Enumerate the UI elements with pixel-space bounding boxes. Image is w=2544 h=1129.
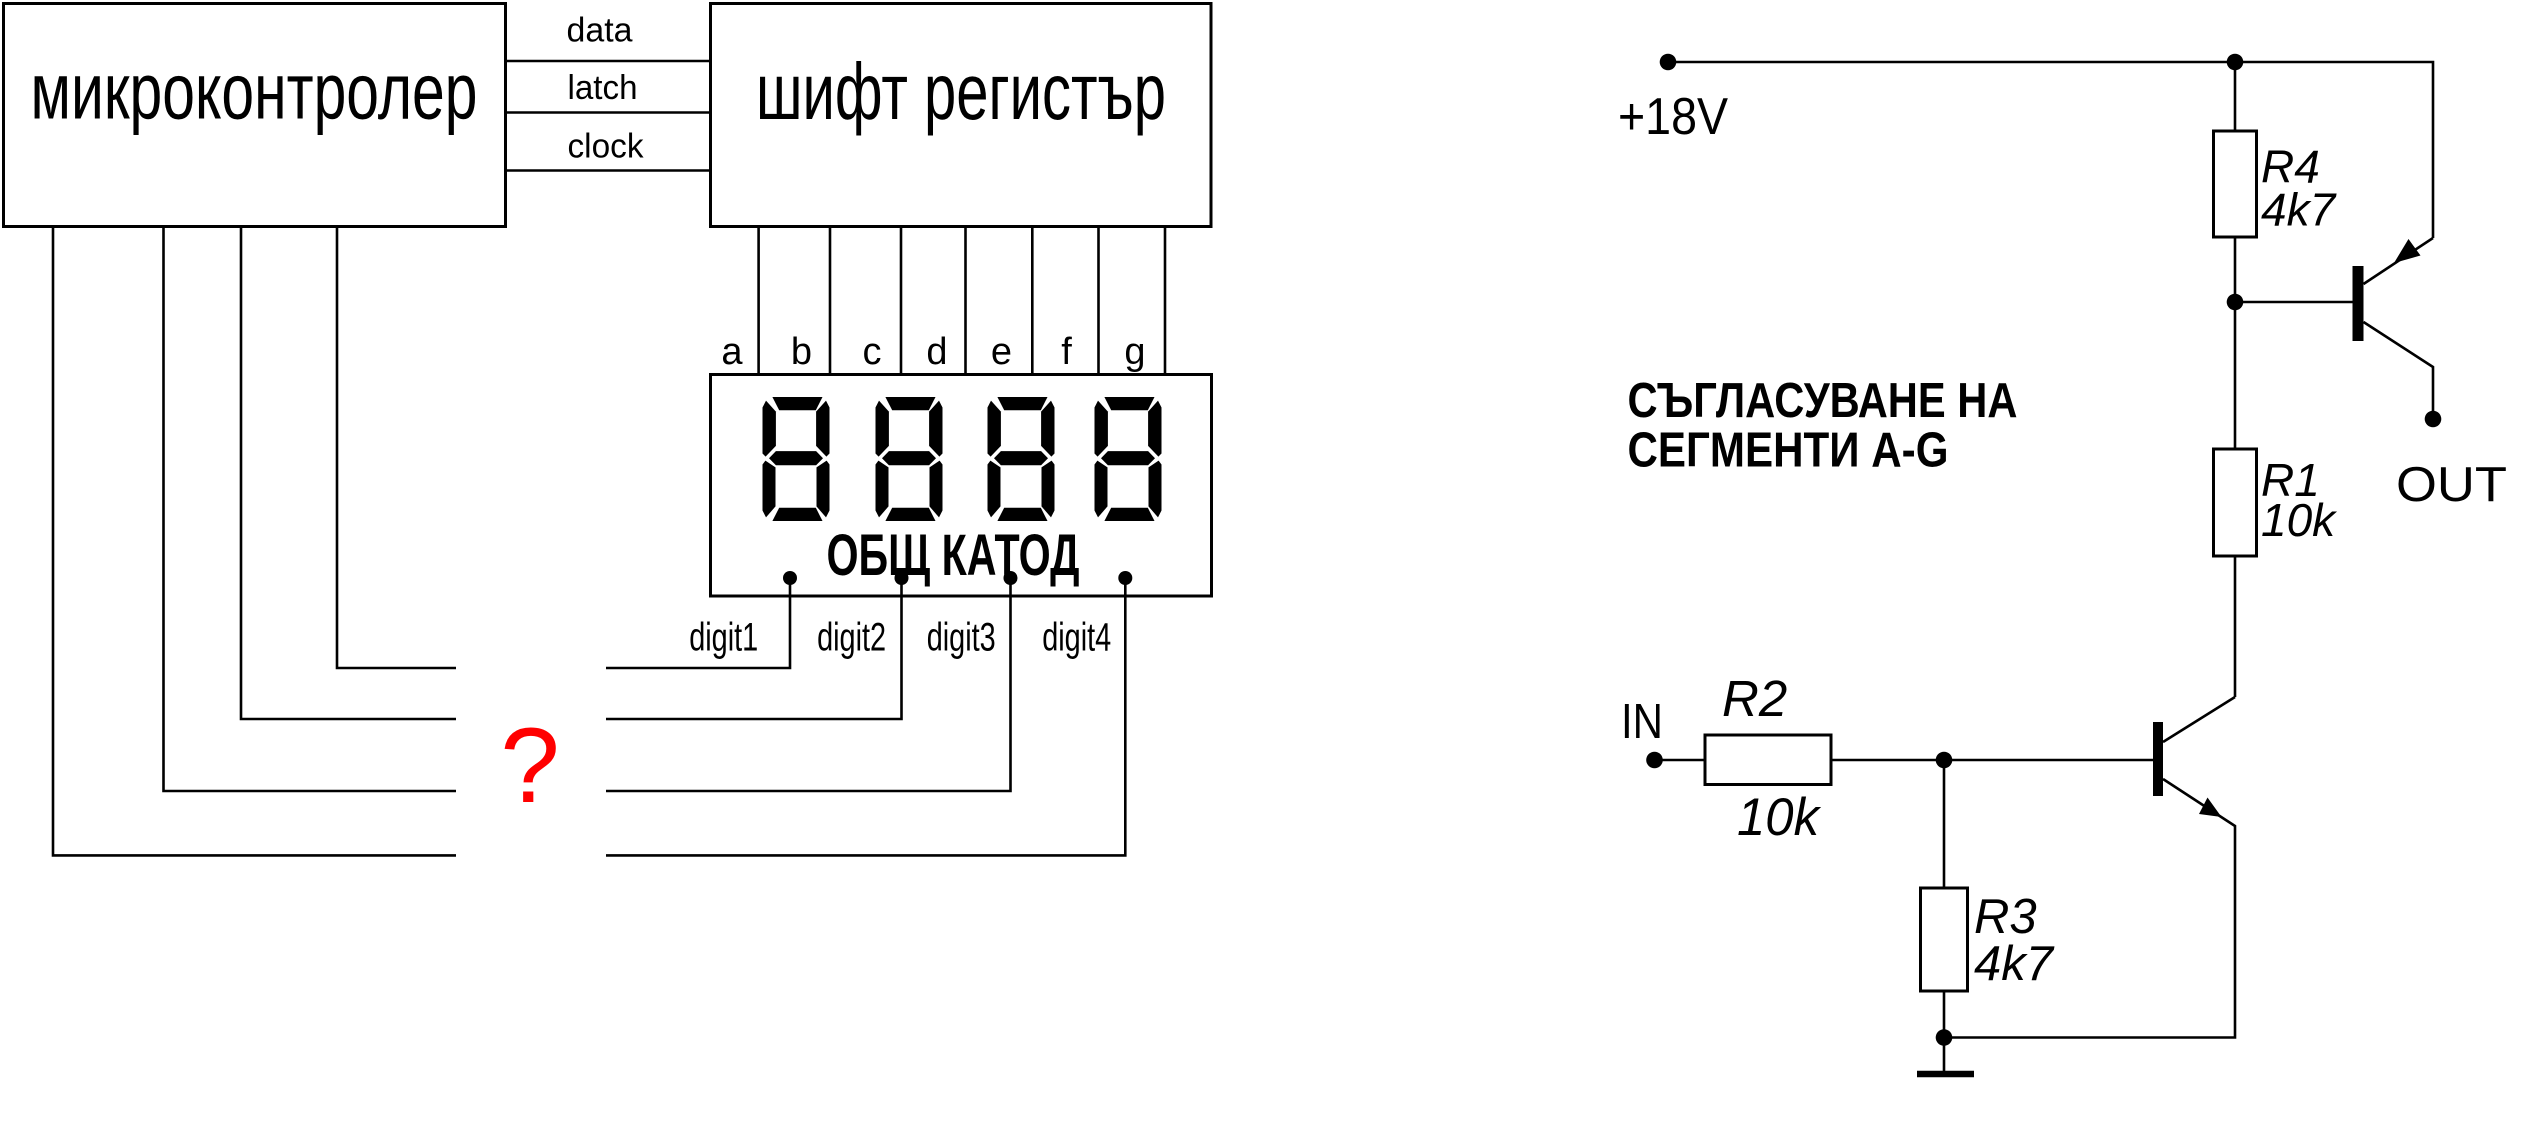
svg-text:4k7: 4k7 <box>2261 184 2337 236</box>
svg-text:digit2: digit2 <box>817 616 886 660</box>
svg-text:IN: IN <box>1621 695 1663 749</box>
svg-text:R2: R2 <box>1722 670 1787 727</box>
svg-text:latch: latch <box>568 69 638 107</box>
svg-text:f: f <box>1061 331 1072 373</box>
svg-text:g: g <box>1124 331 1145 373</box>
svg-text:digit1: digit1 <box>689 616 758 660</box>
svg-text:digit3: digit3 <box>927 616 996 660</box>
svg-text:ОБЩ КАТОД: ОБЩ КАТОД <box>827 523 1080 588</box>
svg-text:10k: 10k <box>1737 788 1821 847</box>
svg-text:?: ? <box>500 705 560 825</box>
svg-text:СЕГМЕНТИ A-G: СЕГМЕНТИ A-G <box>1628 423 1949 477</box>
svg-text:микроконтролер: микроконтролер <box>31 47 478 136</box>
svg-text:+18V: +18V <box>1618 88 1728 146</box>
svg-text:a: a <box>721 331 743 373</box>
svg-text:c: c <box>863 331 882 373</box>
svg-text:b: b <box>791 331 812 373</box>
svg-text:data: data <box>567 12 633 50</box>
svg-text:clock: clock <box>568 128 645 166</box>
svg-text:d: d <box>926 331 947 373</box>
svg-text:R3: R3 <box>1974 890 2037 944</box>
svg-text:СЪГЛАСУВАНЕ НА: СЪГЛАСУВАНЕ НА <box>1628 374 2018 428</box>
svg-text:digit4: digit4 <box>1042 616 1111 660</box>
svg-text:10k: 10k <box>2261 494 2337 546</box>
svg-text:4k7: 4k7 <box>1974 937 2055 991</box>
svg-text:OUT: OUT <box>2396 458 2507 512</box>
svg-text:шифт регистър: шифт регистър <box>756 47 1166 136</box>
svg-text:e: e <box>991 331 1012 373</box>
